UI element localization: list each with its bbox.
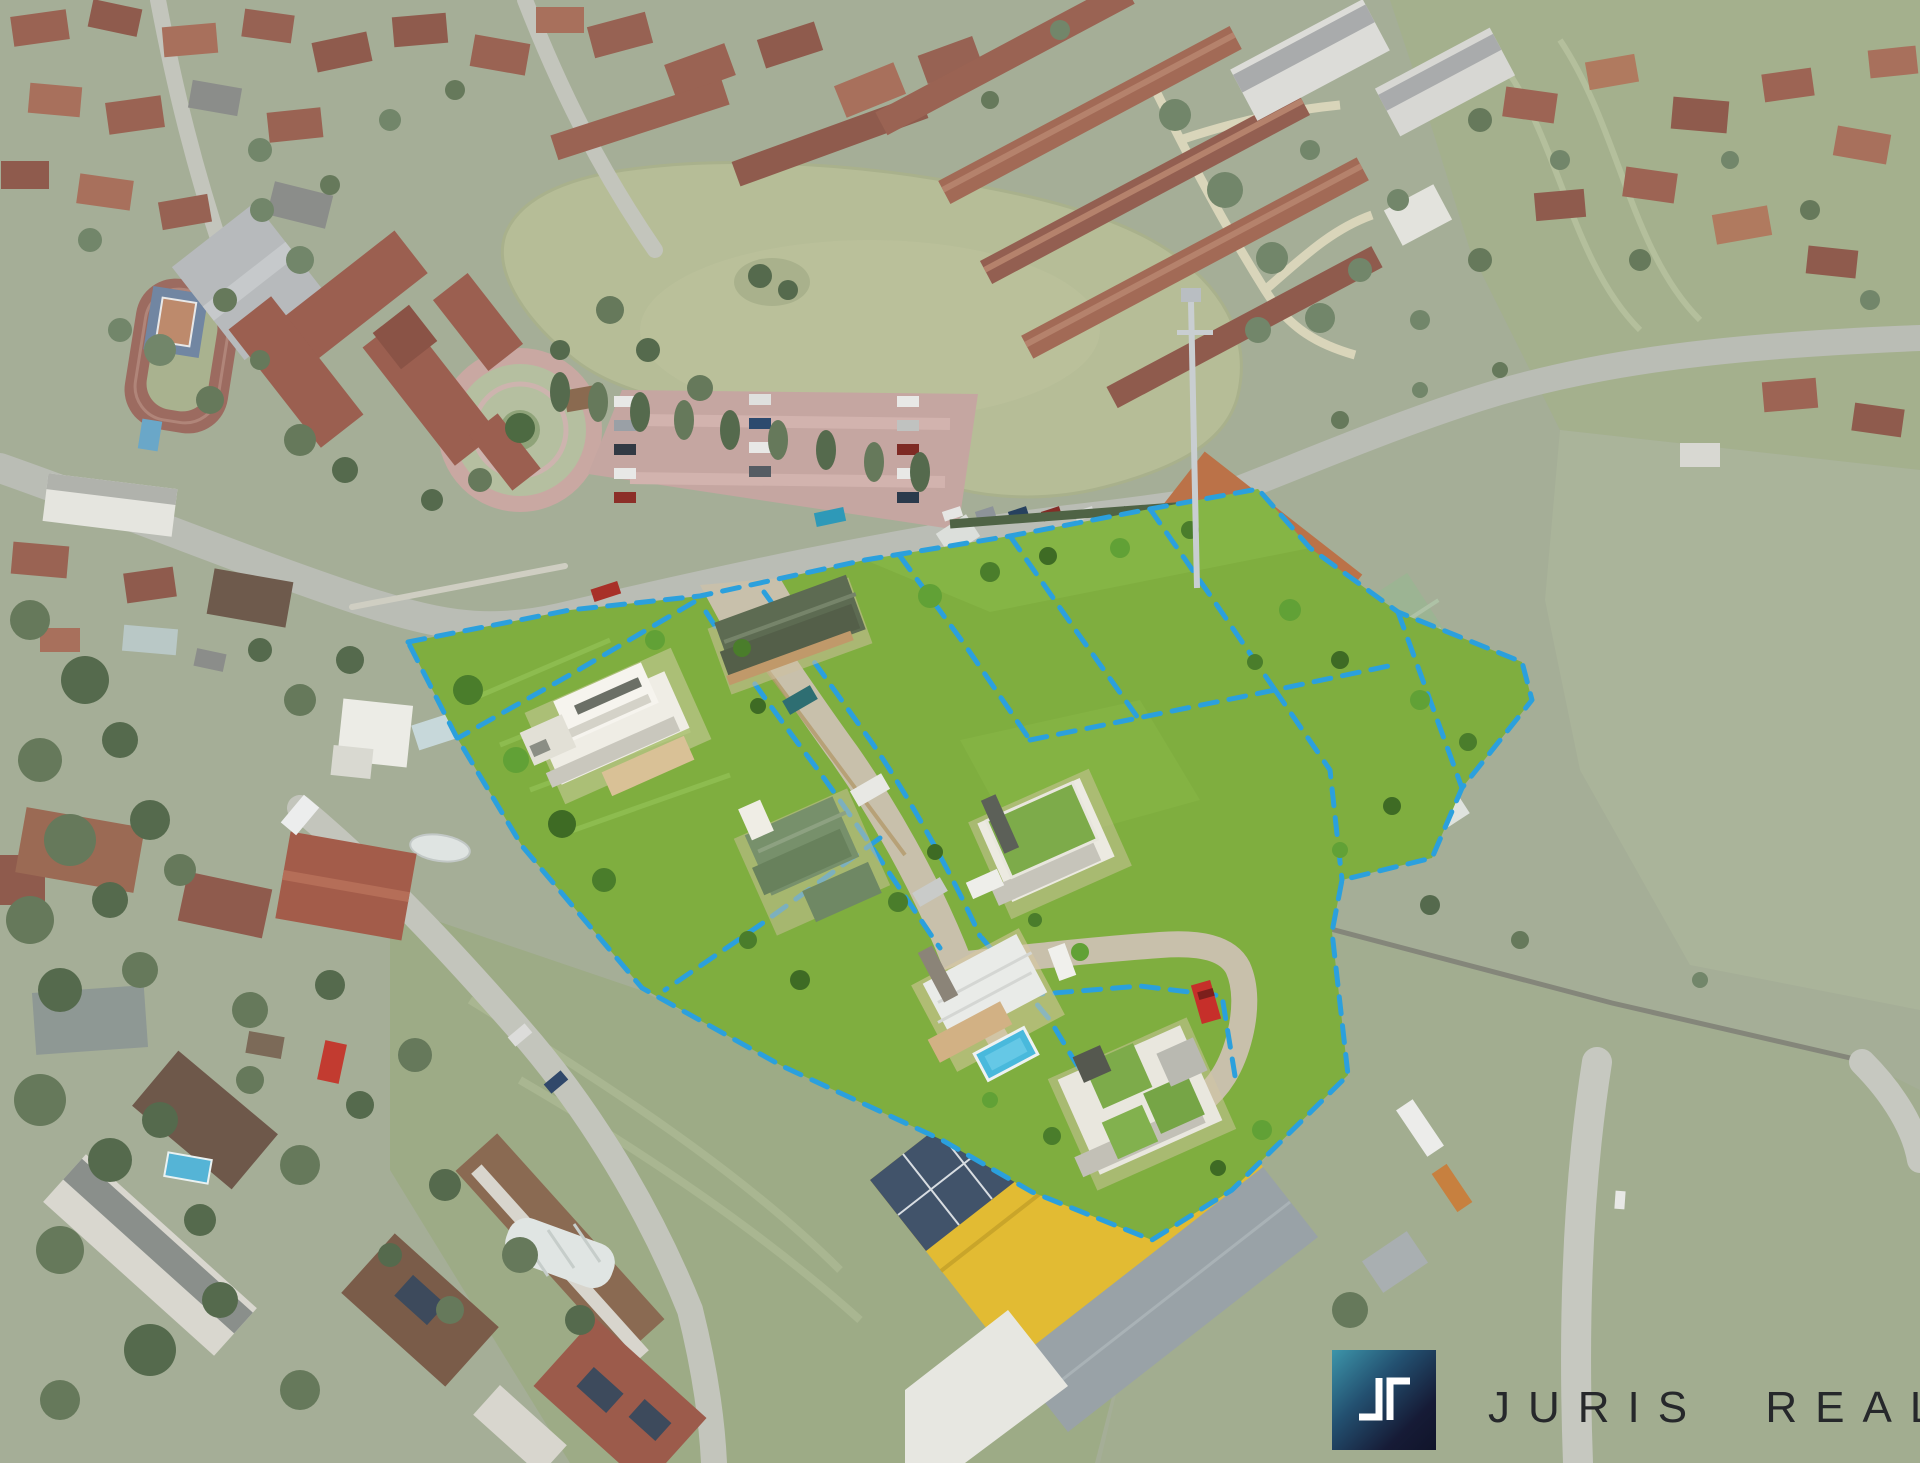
jr-monogram-icon bbox=[1332, 1350, 1436, 1450]
brand-wordmark: JURIS REAL bbox=[1488, 1383, 1920, 1433]
aerial-scene bbox=[0, 0, 1920, 1463]
aerial-photo: JURIS REAL bbox=[0, 0, 1920, 1463]
juris-real-logo bbox=[1332, 1350, 1436, 1450]
juris-real-watermark: JURIS REAL bbox=[1332, 1350, 1920, 1450]
pond-island bbox=[734, 258, 810, 306]
